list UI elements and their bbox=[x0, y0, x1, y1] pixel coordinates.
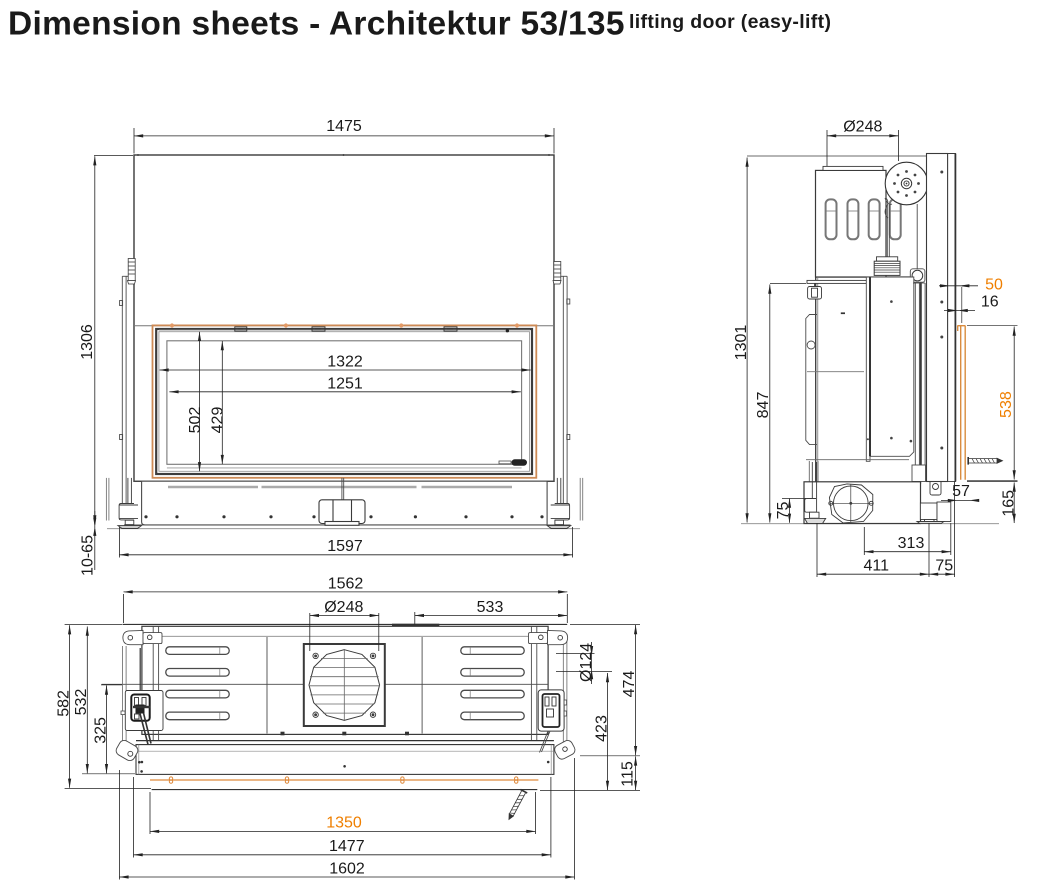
svg-text:1475: 1475 bbox=[326, 118, 362, 135]
svg-text:1306: 1306 bbox=[79, 324, 96, 360]
svg-text:1562: 1562 bbox=[328, 575, 364, 592]
svg-text:325: 325 bbox=[92, 717, 109, 744]
svg-text:Ø248: Ø248 bbox=[843, 118, 882, 135]
svg-text:115: 115 bbox=[620, 761, 637, 787]
svg-text:423: 423 bbox=[594, 715, 611, 742]
svg-text:lifting door (easy-lift): lifting door (easy-lift) bbox=[629, 11, 831, 33]
svg-text:313: 313 bbox=[898, 535, 925, 552]
svg-text:429: 429 bbox=[210, 407, 227, 434]
svg-text:Ø124: Ø124 bbox=[578, 643, 595, 682]
svg-text:165: 165 bbox=[1001, 490, 1018, 517]
svg-text:474: 474 bbox=[621, 671, 638, 698]
svg-text:16: 16 bbox=[981, 293, 999, 310]
svg-text:847: 847 bbox=[755, 392, 772, 419]
svg-text:1597: 1597 bbox=[327, 538, 363, 555]
svg-text:582: 582 bbox=[56, 690, 73, 717]
svg-text:532: 532 bbox=[73, 689, 90, 716]
svg-text:50: 50 bbox=[985, 277, 1003, 294]
svg-text:1301: 1301 bbox=[733, 325, 750, 361]
svg-text:10-65: 10-65 bbox=[79, 535, 96, 576]
svg-text:75: 75 bbox=[775, 502, 792, 520]
svg-text:75: 75 bbox=[935, 558, 953, 575]
svg-text:1322: 1322 bbox=[327, 354, 363, 371]
svg-text:1350: 1350 bbox=[326, 815, 362, 832]
svg-text:533: 533 bbox=[477, 599, 504, 616]
svg-text:1477: 1477 bbox=[329, 838, 365, 855]
svg-text:502: 502 bbox=[187, 407, 204, 434]
svg-text:1602: 1602 bbox=[329, 860, 365, 877]
svg-text:Dimension sheets - Architektur: Dimension sheets - Architektur 53/135 bbox=[8, 6, 625, 43]
svg-text:1251: 1251 bbox=[327, 375, 363, 392]
svg-text:411: 411 bbox=[864, 558, 890, 575]
svg-text:Ø248: Ø248 bbox=[324, 599, 363, 616]
svg-text:538: 538 bbox=[998, 391, 1015, 418]
